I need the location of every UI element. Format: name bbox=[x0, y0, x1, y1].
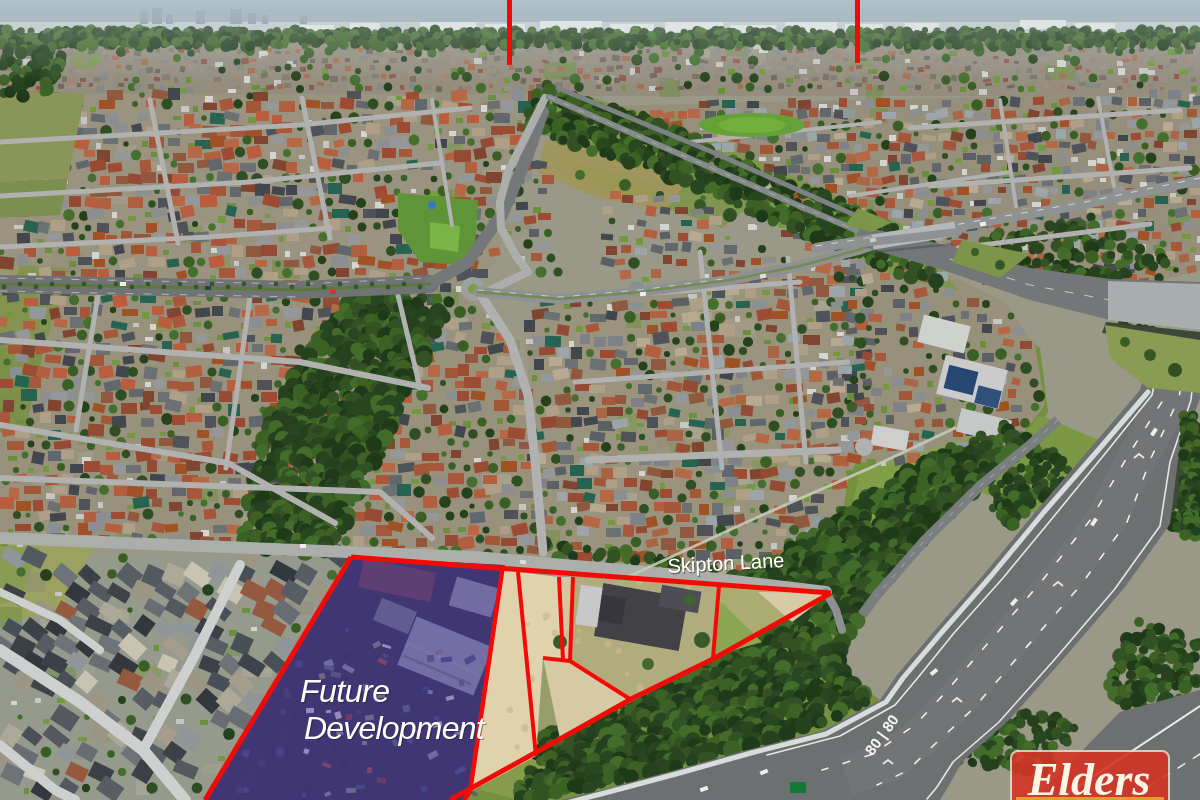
svg-text:Future: Future bbox=[300, 673, 389, 709]
svg-text:Development: Development bbox=[304, 710, 486, 746]
svg-text:Elders: Elders bbox=[1027, 754, 1151, 800]
